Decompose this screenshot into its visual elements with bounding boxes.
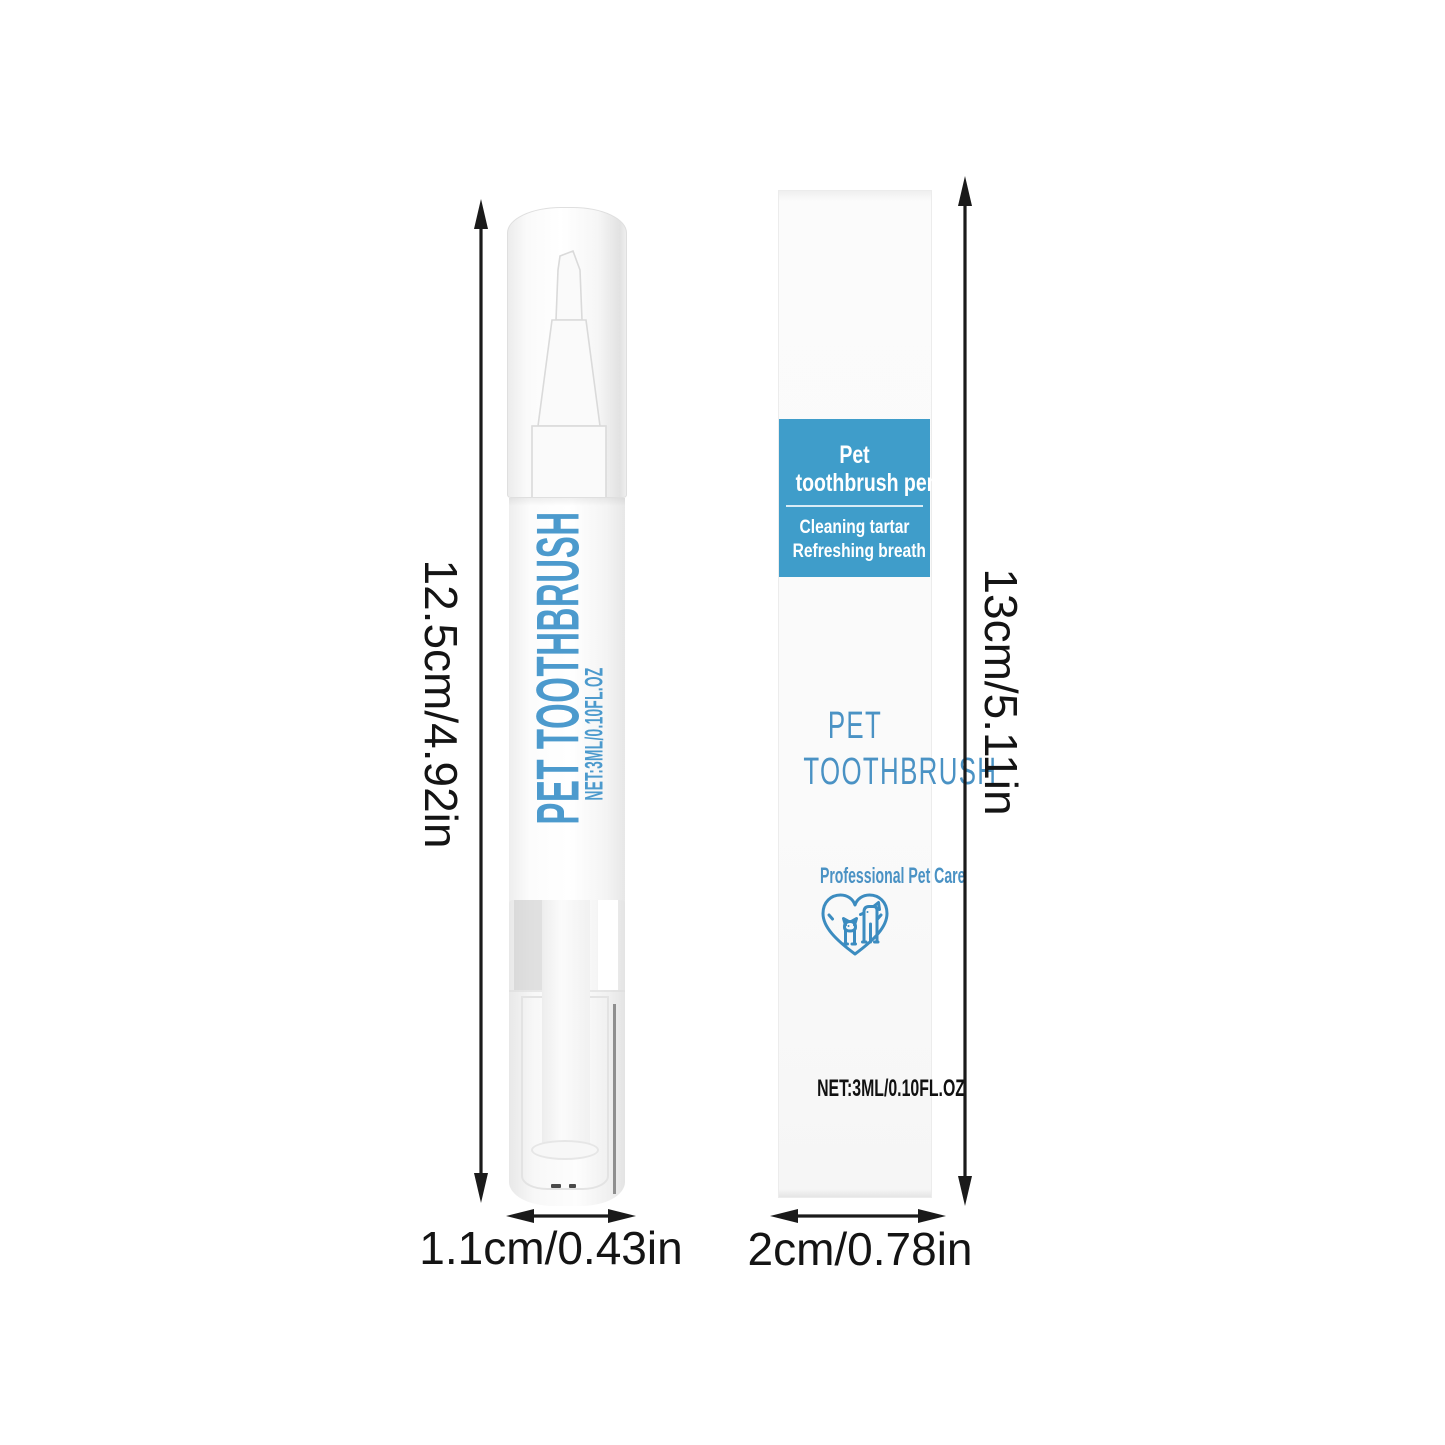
box-product-name-line1: PET — [803, 703, 906, 749]
product-dimensions-diagram: 12.5cm/4.92in PET TOOTHBRUSH NET: — [0, 0, 1445, 1445]
pen-twist-base — [509, 900, 625, 1206]
pen-cap — [507, 207, 627, 498]
pen-net-content: NET:3ML/0.10FL.OZ — [581, 667, 610, 800]
pen-base-highlight — [598, 900, 618, 990]
pen-base-speck — [569, 1184, 576, 1188]
pen-height-label: 12.5cm/4.92in — [418, 560, 464, 849]
box-panel-title-line1: Pet — [796, 441, 914, 469]
product-box: Pet toothbrush pen Cleaning tartar Refre… — [778, 190, 932, 1198]
box-net-content-text: NET:3ML/0.10FL.OZ — [817, 1074, 965, 1104]
box-blue-panel: Pet toothbrush pen Cleaning tartar Refre… — [779, 419, 930, 577]
pen-height-arrow — [466, 197, 496, 1205]
box-product-name-line2: TOOTHBRUSH — [803, 749, 906, 795]
pen-cap-nib — [508, 208, 627, 498]
box-panel-divider — [786, 505, 923, 507]
heart-logo-wrap — [779, 889, 931, 966]
box-tagline: Professional Pet Care — [779, 863, 931, 889]
box-product-name: PET TOOTHBRUSH — [779, 703, 931, 795]
pen-rod-base — [531, 1140, 599, 1160]
box-panel-subtitle-line2: Refreshing breath — [793, 540, 917, 564]
pen-inner-rod — [542, 900, 590, 1152]
pen-base-edge-line — [613, 1004, 616, 1194]
box-tagline-text: Professional Pet Care — [820, 863, 966, 889]
box-panel-title-line2: toothbrush pen — [796, 469, 914, 497]
box-net-content: NET:3ML/0.10FL.OZ — [779, 1074, 931, 1104]
heart-with-dog-and-cat-icon — [816, 889, 894, 961]
box-panel-subtitle-line1: Cleaning tartar — [793, 516, 917, 540]
pen-width-label: 1.1cm/0.43in — [419, 1225, 682, 1271]
box-width-label: 2cm/0.78in — [747, 1226, 972, 1272]
pen-base-speck — [551, 1184, 561, 1188]
box-height-label: 13cm/5.11in — [978, 568, 1024, 815]
pen-base-shade — [514, 900, 545, 990]
